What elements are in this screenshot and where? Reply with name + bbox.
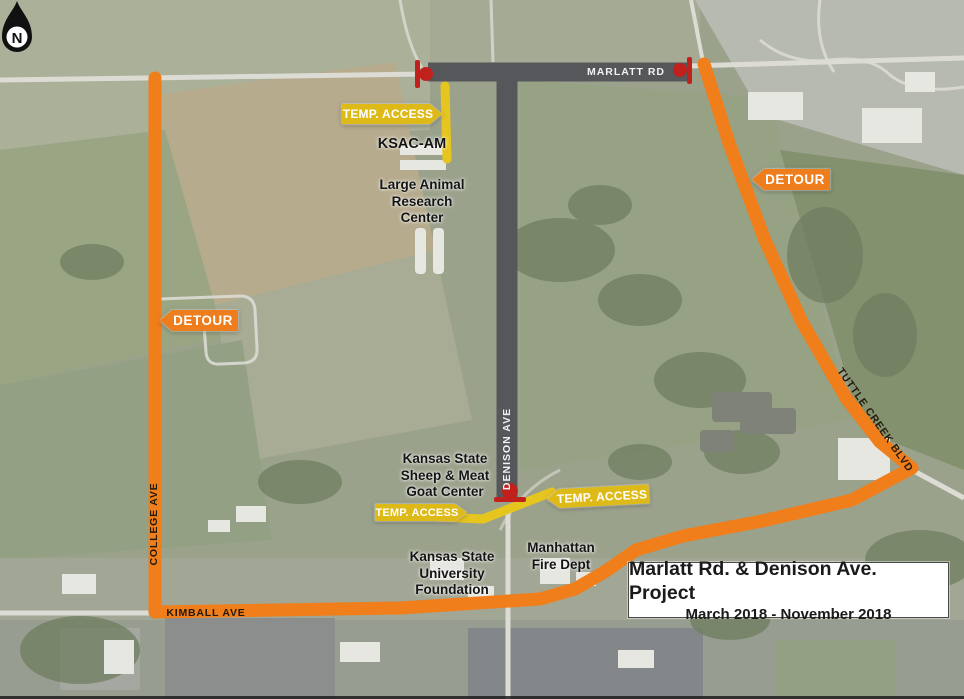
project-title-box: Marlatt Rd. & Denison Ave. Project March… [628,562,949,618]
large-animal-research-center-label: Large Animal Research Center [379,177,464,227]
temp-access-flag-north: TEMP. ACCESS [342,104,442,124]
north-arrow-icon: N [0,0,34,56]
project-title: Marlatt Rd. & Denison Ave. Project [629,557,948,605]
svg-text:N: N [12,30,23,47]
marlatt-rd-label: MARLATT RD [587,66,665,78]
sheep-meat-goat-center-label: Kansas State Sheep & Meat Goat Center [401,451,490,501]
denison-ave-label: DENISON AVE [501,408,513,490]
map-canvas: MARLATT RD DENISON AVE COLLEGE AVE KIMBA… [0,0,964,699]
temp-access-flag-south-west: TEMP. ACCESS [375,504,467,521]
fire-dept-label: Manhattan Fire Dept [527,540,595,573]
detour-flag-west: DETOUR [160,310,238,331]
project-dates: March 2018 - November 2018 [686,605,892,624]
kimball-ave-label: KIMBALL AVE [166,607,245,619]
detour-route [155,64,912,612]
ksac-am-label: KSAC-AM [378,136,446,153]
college-ave-label: COLLEGE AVE [148,483,160,566]
detour-flag-east: DETOUR [752,169,830,190]
ksu-foundation-label: Kansas State University Foundation [410,549,495,599]
